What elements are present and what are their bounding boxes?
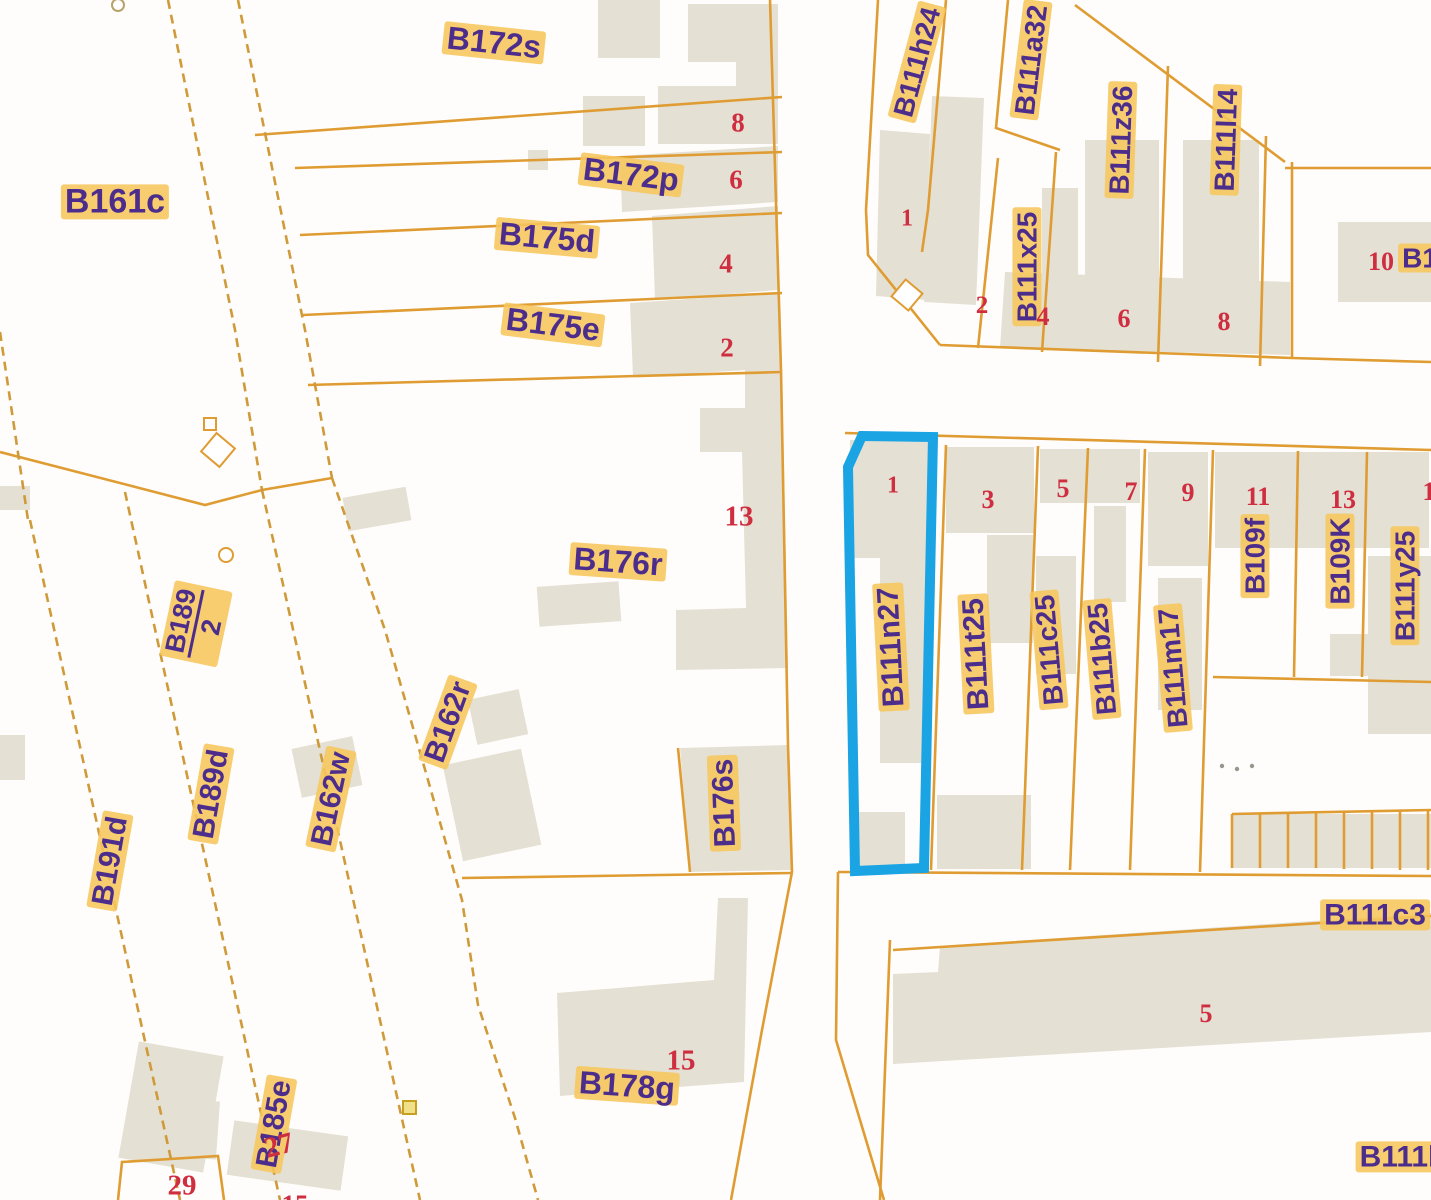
parcel-label-b111t25[interactable]: B111t25	[957, 593, 994, 714]
house-number: 13	[1330, 485, 1356, 515]
house-number: 5	[1057, 474, 1070, 504]
house-number-selected-parcel: 1	[887, 473, 899, 500]
house-number: 7	[1125, 477, 1138, 507]
parcel-label-b111z36[interactable]: B111z36	[1104, 81, 1137, 199]
house-number: 4	[1037, 302, 1050, 332]
parcel-label-b111l[interactable]: B111l	[1356, 1141, 1431, 1172]
parcel-label-b111c3[interactable]: B111c3	[1320, 899, 1430, 930]
parcel-label-b109f[interactable]: B109f	[1240, 514, 1269, 598]
house-number: 11	[1246, 482, 1271, 512]
parcel-label-b161c[interactable]: B161c	[61, 184, 169, 219]
house-number: 6	[1118, 304, 1131, 334]
house-number: 15	[282, 1190, 309, 1200]
house-number: 4	[719, 249, 733, 280]
cadastral-map[interactable]: B161c B172s B172p B175d B175e B176r B176…	[0, 0, 1431, 1200]
parcel-label-b111n27[interactable]: B111n27	[872, 582, 910, 712]
parcel-label-b176r[interactable]: B176r	[568, 542, 667, 582]
parcel-label-b111l14[interactable]: B111l14	[1210, 84, 1243, 196]
parcel-label-b176s[interactable]: B176s	[707, 754, 742, 851]
parcel-label-b189-denominator: 2	[196, 617, 227, 638]
parcel-label-b109k[interactable]: B109K	[1325, 513, 1354, 608]
house-number: 5	[1200, 999, 1213, 1029]
house-number: 1	[901, 206, 913, 233]
dashed-parcel-lines	[0, 0, 538, 1200]
house-number: 8	[1218, 307, 1231, 337]
house-number: 1	[1423, 477, 1431, 507]
house-number: 6	[729, 165, 743, 196]
house-number: 9	[1182, 478, 1195, 508]
house-number: 2	[720, 333, 734, 364]
house-number: 15	[667, 1045, 696, 1078]
house-number: 13	[725, 501, 754, 534]
house-number: 8	[731, 108, 745, 139]
house-number: 29	[168, 1170, 197, 1200]
house-number: 2	[976, 292, 989, 320]
parcel-label-b1-corner[interactable]: B1	[1398, 243, 1431, 272]
parcel-label-b178g[interactable]: B178g	[574, 1066, 680, 1106]
house-number: 3	[982, 485, 995, 515]
parcel-label-b111y25[interactable]: B111y25	[1390, 527, 1419, 646]
house-number: 10	[1368, 247, 1394, 277]
